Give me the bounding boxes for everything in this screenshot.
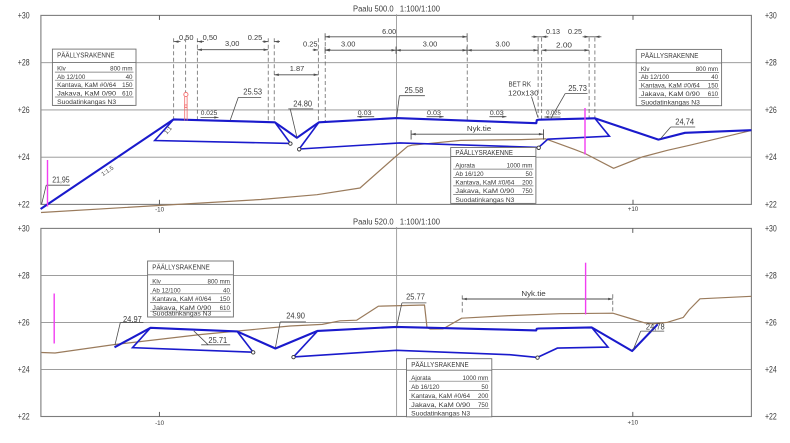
svg-text:PÄÄLLYSRAKENNE: PÄÄLLYSRAKENNE [57,52,115,60]
svg-text:PÄÄLLYSRAKENNE: PÄÄLLYSRAKENNE [152,263,210,271]
svg-text:+30: +30 [18,10,30,20]
svg-text:+22: +22 [18,199,30,209]
svg-text:610: 610 [708,91,719,98]
svg-text:+24: +24 [765,152,777,162]
svg-text:25.73: 25.73 [568,84,587,93]
svg-text:150: 150 [220,296,231,303]
svg-text:0.025: 0.025 [201,111,218,117]
svg-text:Suodatinkangas N3: Suodatinkangas N3 [57,99,117,106]
svg-text:25.53: 25.53 [243,87,262,96]
svg-text:Klv: Klv [152,278,162,285]
svg-text:+26: +26 [18,105,30,115]
svg-text:Ajorata: Ajorata [455,163,475,170]
svg-text:0.25: 0.25 [248,33,263,42]
svg-text:150: 150 [708,82,719,89]
svg-text:40: 40 [711,74,718,81]
svg-text:120x130: 120x130 [508,90,539,97]
svg-text:Nyk.tie: Nyk.tie [467,126,491,133]
svg-text:0,50: 0,50 [179,33,194,42]
svg-text:Klv: Klv [641,66,651,73]
svg-text:+30: +30 [765,10,777,20]
svg-text:Kantava, KaM #0/64: Kantava, KaM #0/64 [57,82,117,89]
svg-text:800 mm: 800 mm [208,278,230,285]
svg-text:+24: +24 [765,364,777,374]
svg-text:24.90: 24.90 [286,312,305,321]
svg-text:Klv: Klv [57,66,67,73]
svg-text:Nyk.tie: Nyk.tie [521,291,545,298]
svg-text:24,78: 24,78 [646,322,665,331]
svg-text:Suodatinkangas N3: Suodatinkangas N3 [641,99,701,106]
svg-text:25.71: 25.71 [208,336,227,345]
svg-text:1.87: 1.87 [290,64,305,73]
svg-text:PÄÄLLYSRAKENNE: PÄÄLLYSRAKENNE [411,361,469,369]
svg-text:40: 40 [223,287,230,294]
svg-text:Ab 12/100: Ab 12/100 [641,74,670,81]
svg-text:+24: +24 [18,152,30,162]
svg-text:+10: +10 [628,206,639,213]
svg-text:+28: +28 [765,270,777,280]
svg-text:+26: +26 [18,317,30,327]
svg-text:6.00: 6.00 [382,27,396,36]
svg-text:Kantava, KaM #0/64: Kantava, KaM #0/64 [152,296,212,303]
svg-text:150: 150 [122,82,133,89]
svg-text:50: 50 [526,171,533,178]
svg-text:Jakava, KaM 0/90: Jakava, KaM 0/90 [411,402,471,409]
svg-text:-10: -10 [155,206,164,213]
svg-text:+28: +28 [765,58,777,68]
svg-text:Ajorata: Ajorata [411,375,431,382]
svg-text:24,74: 24,74 [675,117,694,126]
svg-text:25.77: 25.77 [406,293,425,302]
svg-text:+22: +22 [765,199,777,209]
svg-text:+26: +26 [765,317,777,327]
svg-text:Jakava, KaM 0/90: Jakava, KaM 0/90 [641,91,701,98]
svg-text:2.00: 2.00 [556,40,572,49]
svg-text:+10: +10 [628,419,639,426]
svg-text:0,50: 0,50 [203,33,218,42]
svg-text:40: 40 [126,74,133,81]
svg-text:-10: -10 [155,420,164,427]
svg-text:Kantava, KaM #0/64: Kantava, KaM #0/64 [455,180,515,187]
svg-text:200: 200 [478,393,489,400]
svg-text:PÄÄLLYSRAKENNE: PÄÄLLYSRAKENNE [641,52,699,60]
svg-text:Kantava, KaM #0/64: Kantava, KaM #0/64 [641,82,701,89]
svg-text:+30: +30 [765,223,777,233]
svg-text:Suodatinkangas N3: Suodatinkangas N3 [411,410,471,417]
svg-text:Paalu 500.0 1:100/1:100: Paalu 500.0 1:100/1:100 [353,4,440,13]
svg-text:3.00: 3.00 [495,40,510,49]
svg-text:3,00: 3,00 [225,39,240,48]
svg-text:Jakava, KaM 0/90: Jakava, KaM 0/90 [455,188,515,195]
svg-text:Ab 16/120: Ab 16/120 [411,384,440,391]
svg-text:+30: +30 [18,223,30,233]
svg-text:24.80: 24.80 [293,100,312,109]
svg-text:200: 200 [522,180,533,187]
svg-text:610: 610 [220,305,231,312]
svg-text:1000 mm: 1000 mm [463,375,489,382]
svg-text:50: 50 [481,384,488,391]
svg-text:+28: +28 [18,270,30,280]
svg-text:+22: +22 [765,412,777,422]
svg-text:610: 610 [122,91,133,98]
svg-text:0.25: 0.25 [303,40,318,49]
svg-text:Ab 16/120: Ab 16/120 [455,171,484,178]
svg-text:800 mm: 800 mm [696,66,718,73]
svg-text:1000 mm: 1000 mm [507,163,533,170]
svg-text:+26: +26 [765,105,777,115]
svg-text:Paalu 520.0 1:100/1:100: Paalu 520.0 1:100/1:100 [353,217,440,226]
svg-text:0.13: 0.13 [546,27,560,36]
svg-text:+28: +28 [18,58,30,68]
svg-text:Jakava, KaM 0/90: Jakava, KaM 0/90 [57,91,117,98]
svg-text:PÄÄLLYSRAKENNE: PÄÄLLYSRAKENNE [455,149,513,157]
svg-text:25.58: 25.58 [405,86,424,95]
svg-text:3.00: 3.00 [423,40,438,49]
svg-text:3.00: 3.00 [341,40,356,49]
svg-text:750: 750 [478,402,489,409]
svg-text:+22: +22 [18,412,30,422]
svg-text:+24: +24 [18,364,30,374]
svg-text:800 mm: 800 mm [110,66,132,73]
svg-text:Suodatinkangas N3: Suodatinkangas N3 [152,311,212,318]
svg-text:BET RK: BET RK [509,82,532,89]
svg-text:21,95: 21,95 [52,175,70,184]
svg-text:Kantava, KaM #0/64: Kantava, KaM #0/64 [411,393,471,400]
svg-text:Ab 12/100: Ab 12/100 [57,74,86,81]
svg-text:750: 750 [522,188,533,195]
svg-text:0.25: 0.25 [568,27,582,36]
svg-text:Suodatinkangas N3: Suodatinkangas N3 [455,197,515,204]
svg-text:Ab 12/100: Ab 12/100 [152,287,181,294]
